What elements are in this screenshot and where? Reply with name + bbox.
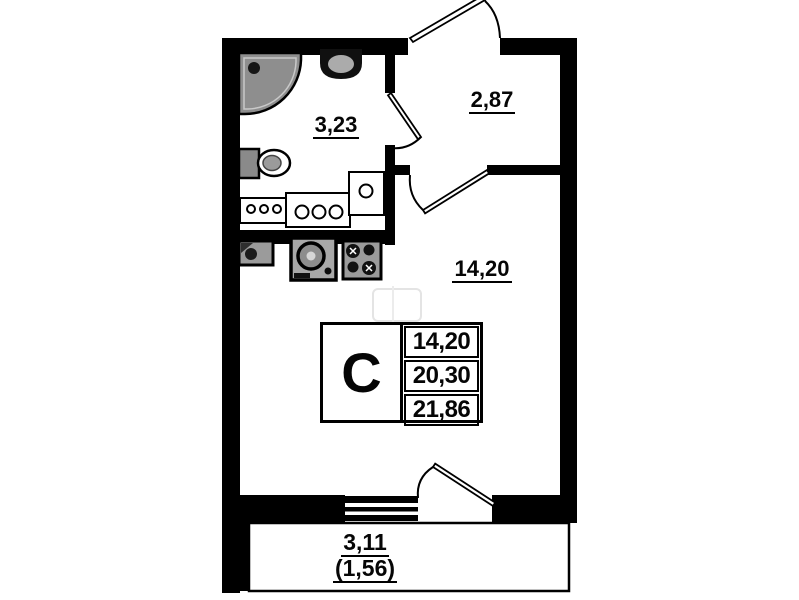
bathroom-counter-icon <box>240 172 384 227</box>
room-area-value: 14,20 <box>452 258 511 283</box>
bottom-wall-right <box>492 495 562 523</box>
bathroom-area-value: 3,23 <box>313 114 360 139</box>
counter-circle <box>260 205 268 213</box>
hall-bottom-wall <box>487 165 562 175</box>
counter-circle <box>247 205 255 213</box>
hall-wall-stub <box>385 165 410 175</box>
counter-circle <box>296 206 309 219</box>
balcony-door-arc <box>418 467 433 498</box>
shower-tray-icon <box>239 53 301 114</box>
shower-drain-icon <box>248 62 260 74</box>
stove-burner <box>348 262 359 273</box>
bottom-wall-left <box>240 495 345 523</box>
bathroom-door-icon <box>388 93 421 139</box>
entrance-door-icon <box>410 0 485 42</box>
floor-plan: 3,23 2,87 14,20 3,11 (1,56) С 14,20 20,3… <box>0 0 799 600</box>
area-value-row-2: 20,30 <box>404 360 479 392</box>
hallway-area-label: 2,87 <box>462 87 522 114</box>
scan-artifact <box>372 288 422 322</box>
kitchen-fixtures <box>239 238 381 280</box>
counter-circle <box>273 205 281 213</box>
left-wall-balcony <box>240 523 248 591</box>
apartment-type-letter: С <box>323 325 403 420</box>
window-line-3 <box>345 515 418 521</box>
bathroom-wall-top-stub <box>385 55 395 93</box>
room-door-arc <box>410 175 423 210</box>
left-wall <box>222 38 240 593</box>
washbasin-bowl <box>328 55 354 73</box>
window-line-2 <box>345 507 418 512</box>
counter-circle <box>360 185 373 198</box>
hallway-area-value: 2,87 <box>469 89 516 114</box>
balcony-area-label: 3,11 <box>331 529 399 557</box>
area-value-row-1: 14,20 <box>404 326 479 358</box>
balcony-icon <box>249 523 569 591</box>
washing-machine-door-center <box>307 252 316 261</box>
doors <box>388 0 500 506</box>
room-door-icon <box>423 170 489 213</box>
area-value-row-3: 21,86 <box>404 394 479 426</box>
toilet-tank-icon <box>239 149 259 178</box>
right-wall <box>560 38 577 523</box>
balcony-area-value: 3,11 <box>341 531 389 557</box>
apartment-area-values: 14,20 20,30 21,86 <box>403 325 480 420</box>
washing-machine-knob <box>325 268 332 275</box>
washing-machine-bar <box>294 273 310 278</box>
kitchen-sink-drain <box>245 248 257 260</box>
counter-circle <box>330 206 343 219</box>
room-area-label: 14,20 <box>450 256 514 283</box>
balcony-reduced-area-value: (1,56) <box>333 557 397 583</box>
counter-circle <box>313 206 326 219</box>
scan-artifact-line <box>392 286 394 323</box>
window-icon <box>345 495 418 523</box>
window-line-1 <box>345 496 418 503</box>
balcony-reduced-area-label: (1,56) <box>323 555 407 583</box>
stove-burner <box>364 245 375 256</box>
entrance-door-arc <box>485 1 500 38</box>
bathroom-area-label: 3,23 <box>306 112 366 139</box>
balcony-door-icon <box>433 464 495 506</box>
apartment-info-table: С 14,20 20,30 21,86 <box>320 322 483 423</box>
toilet-bowl-inner <box>263 156 281 171</box>
